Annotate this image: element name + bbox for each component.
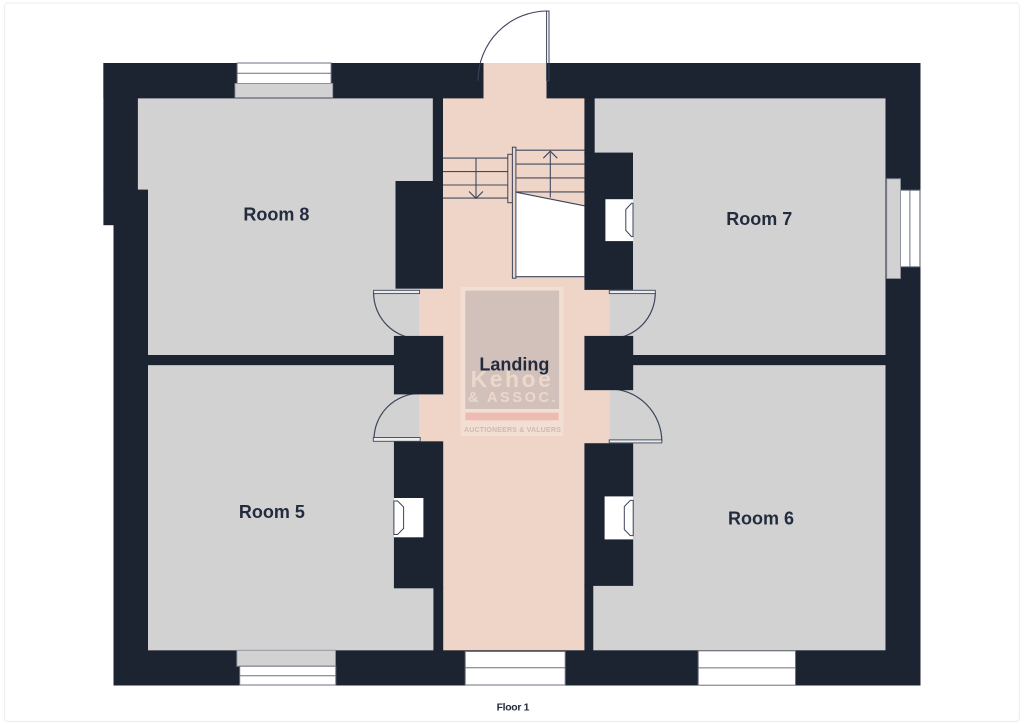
svg-text:Room 7: Room 7 [726,209,792,229]
svg-text:AUCTIONEERS & VALUERS: AUCTIONEERS & VALUERS [464,427,561,434]
svg-text:Room 8: Room 8 [243,205,309,225]
svg-text:Room 5: Room 5 [239,502,305,522]
svg-text:& ASSOC.: & ASSOC. [468,390,558,406]
svg-text:Landing: Landing [479,355,549,375]
svg-text:Floor 1: Floor 1 [497,703,530,714]
svg-text:Room 6: Room 6 [728,509,794,529]
